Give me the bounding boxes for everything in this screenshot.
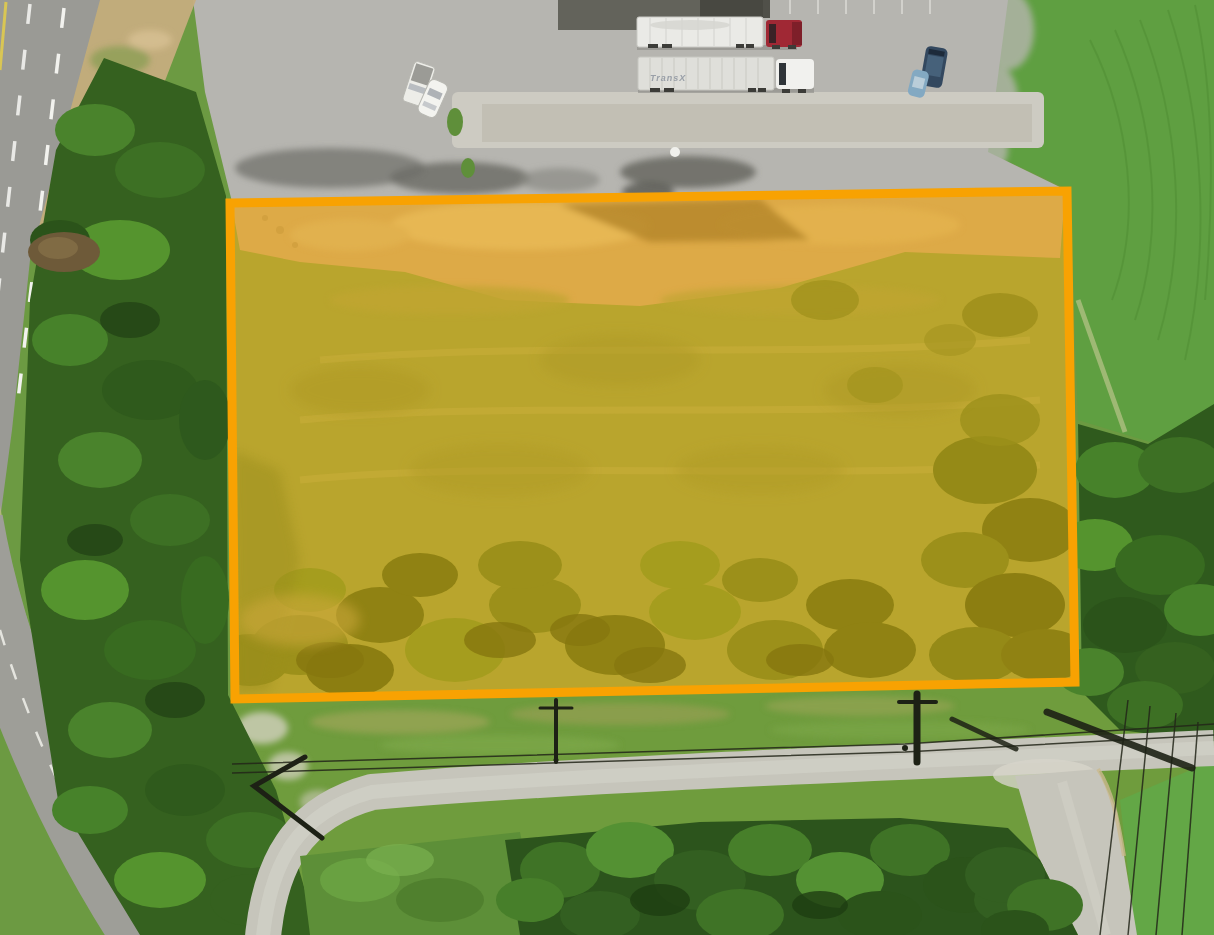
grass-tuft xyxy=(447,108,463,136)
utility-pole-2 xyxy=(554,758,559,763)
trailer-logo: TransX xyxy=(650,73,686,83)
concrete-pad-inner xyxy=(482,104,1032,142)
windshield xyxy=(779,63,786,85)
pond-highlight xyxy=(38,237,78,259)
white-mark xyxy=(670,147,680,157)
semi-truck-red xyxy=(637,17,802,50)
semi-truck-transx: TransX xyxy=(638,57,814,93)
windshield xyxy=(769,24,776,43)
hood xyxy=(792,22,802,45)
dark-structure-2 xyxy=(700,0,770,18)
roof-mottling xyxy=(650,20,730,30)
aerial-parcel-photo: TransX xyxy=(0,0,1214,935)
grass-tuft-2 xyxy=(461,158,475,178)
utility-pole xyxy=(902,745,908,751)
bottom-tree-line xyxy=(496,818,1083,935)
parcel-highlight-overlay xyxy=(230,191,1075,699)
truck-yard xyxy=(193,0,1066,202)
